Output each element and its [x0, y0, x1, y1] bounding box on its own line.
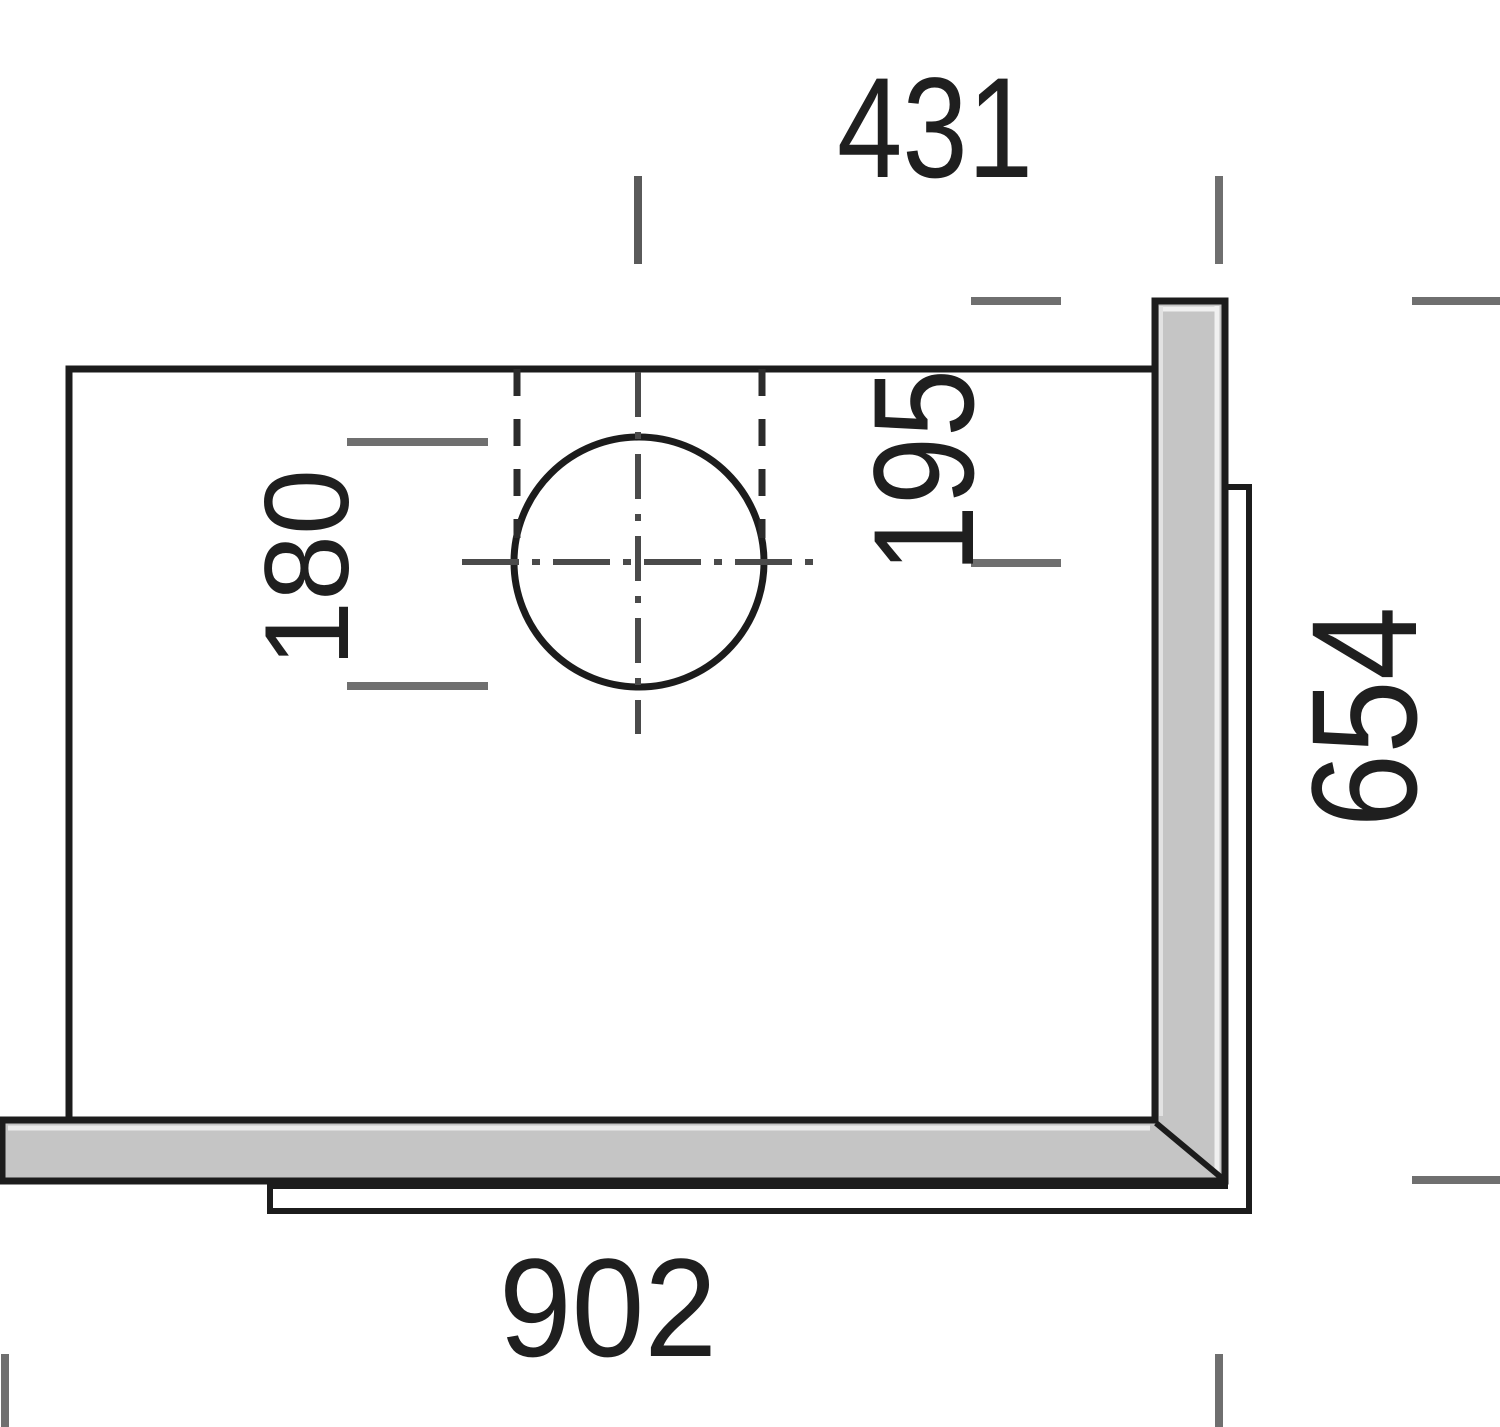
dimension-label-top-width: 431 [837, 49, 1033, 208]
dimension-drawing: 431 195 180 654 902 [0, 0, 1500, 1427]
dimension-label-cutout-diameter: 180 [240, 469, 374, 667]
technical-drawing-page: 431 195 180 654 902 [0, 0, 1500, 1427]
dimension-label-side-depth: 654 [1280, 607, 1448, 828]
dimension-label-bottom-width: 902 [499, 1229, 717, 1386]
dimension-label-cutout-offset: 195 [845, 369, 1004, 573]
